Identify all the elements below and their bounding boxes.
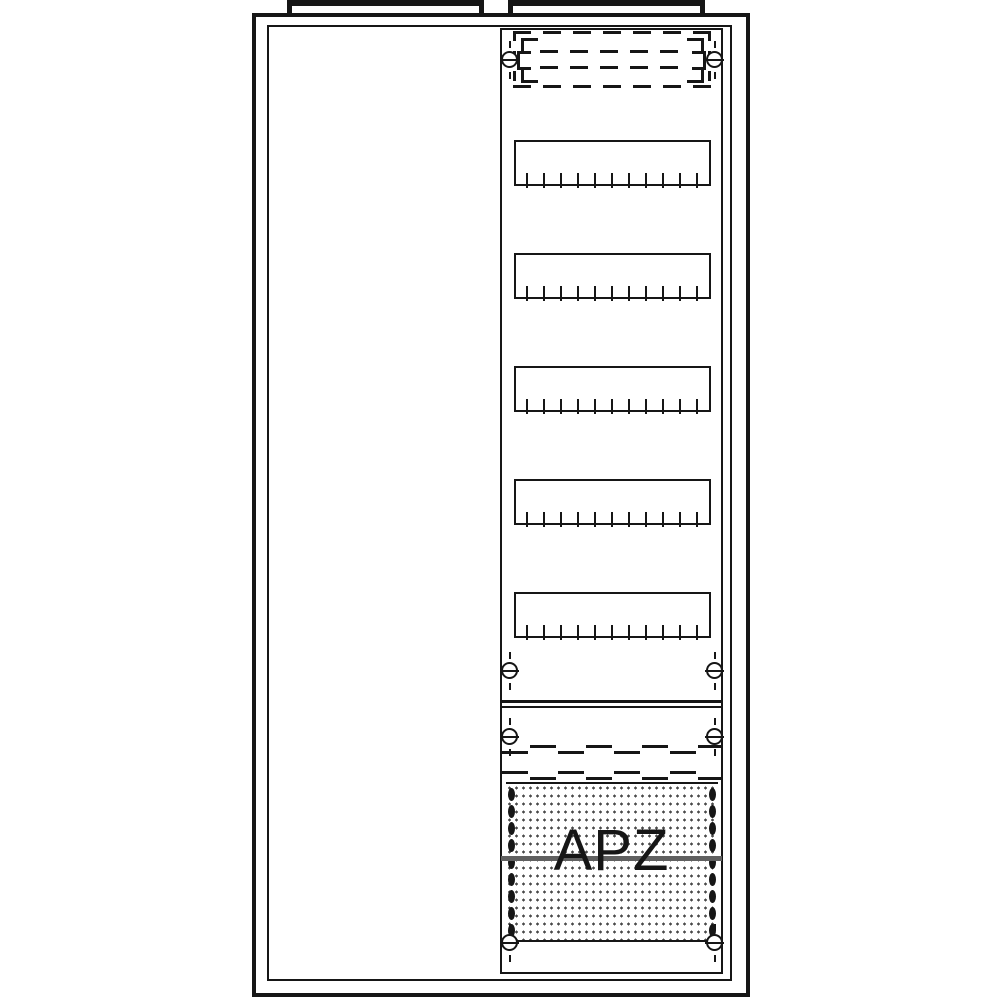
screw-icon [501,934,518,951]
joint-dash [502,771,528,774]
module-tick [560,625,562,640]
perforation-dot [709,890,716,903]
joint-dash [530,777,556,780]
perforation-dot [709,788,716,801]
module-tick [594,625,596,640]
din-rail-row [514,366,711,412]
module-tick [526,286,528,301]
field-divider-line [500,700,723,703]
module-tick [560,512,562,527]
module-tick [611,173,613,188]
screw-alignment-mark [509,683,511,690]
module-tick [696,173,698,188]
joint-dash [558,751,584,754]
screw-alignment-mark [509,41,511,48]
module-tick [662,512,664,527]
module-tick [662,286,664,301]
joint-dash [614,771,640,774]
screw-alignment-mark [509,72,511,79]
perforation-dot [709,805,716,818]
module-tick [696,286,698,301]
module-tick [645,286,647,301]
module-tick [594,512,596,527]
module-tick [526,625,528,640]
knockout-dash-top [513,31,712,34]
joint-dash [614,751,640,754]
screw-icon [501,51,518,68]
module-tick [543,625,545,640]
knockout-mid-bracket-left [517,51,531,70]
module-tick [577,512,579,527]
module-tick [645,512,647,527]
module-tick [594,286,596,301]
screw-alignment-mark [714,41,716,48]
joint-dash [530,745,556,748]
screw-alignment-mark [714,72,716,79]
joint-dash [642,777,668,780]
screw-alignment-mark [509,718,511,725]
module-tick [662,399,664,414]
module-tick [662,625,664,640]
joint-dash [558,771,584,774]
screw-alignment-mark [509,924,511,931]
module-tick [679,512,681,527]
module-tick [645,625,647,640]
module-tick [594,399,596,414]
module-tick [577,399,579,414]
knockout-dash-bottom [513,85,712,88]
joint-dash [670,771,696,774]
din-rail-row [514,253,711,299]
module-tick [526,512,528,527]
module-tick [543,399,545,414]
dashed-cover-joint [502,771,723,781]
screw-icon [706,51,723,68]
joint-dash [698,745,723,748]
module-tick [577,173,579,188]
screw-alignment-mark [509,749,511,756]
module-tick [679,399,681,414]
module-tick [628,399,630,414]
module-tick [577,286,579,301]
screw-icon [706,728,723,745]
joint-dash [698,777,723,780]
joint-dash [642,745,668,748]
module-tick [611,286,613,301]
screw-alignment-mark [714,749,716,756]
module-tick [594,173,596,188]
module-tick [560,173,562,188]
din-rail-row [514,140,711,186]
perforation-dot [508,788,515,801]
din-rail-row [514,479,711,525]
screw-alignment-mark [714,718,716,725]
screw-alignment-mark [714,652,716,659]
module-tick [645,173,647,188]
screw-alignment-mark [714,924,716,931]
module-tick [560,286,562,301]
module-tick [611,512,613,527]
knockout-dash-row [540,66,688,69]
module-tick [577,625,579,640]
module-tick [628,512,630,527]
perforation-dot [508,907,515,920]
screw-alignment-mark [714,955,716,962]
knockout-corner-bracket [521,38,538,52]
joint-dash [586,745,612,748]
module-tick [543,286,545,301]
enclosure-drawing: APZ [0,0,1000,1000]
module-tick [696,625,698,640]
module-tick [679,286,681,301]
joint-dash [586,777,612,780]
screw-alignment-mark [714,683,716,690]
module-tick [526,399,528,414]
knockout-corner-bracket [687,69,704,83]
module-tick [560,399,562,414]
module-tick [611,399,613,414]
perforation-dot [508,805,515,818]
module-tick [679,625,681,640]
screw-icon [501,662,518,679]
din-rail-row [514,592,711,638]
screw-icon [706,934,723,951]
module-tick [679,173,681,188]
field-divider-line [500,706,723,708]
module-tick [543,512,545,527]
apz-label: APZ [500,822,723,880]
module-tick [628,286,630,301]
perforation-dot [709,907,716,920]
dashed-cover-joint [502,745,723,755]
knockout-corner-bracket [521,69,538,83]
module-tick [526,173,528,188]
module-tick [628,625,630,640]
module-tick [645,399,647,414]
module-tick [662,173,664,188]
screw-alignment-mark [509,955,511,962]
module-tick [543,173,545,188]
screw-icon [501,728,518,745]
knockout-corner-bracket [687,38,704,52]
mounting-tab-right [508,0,705,14]
module-tick [611,625,613,640]
module-tick [696,399,698,414]
module-tick [696,512,698,527]
perforation-dot [508,890,515,903]
screw-alignment-mark [509,652,511,659]
joint-dash [502,751,528,754]
knockout-dash-row [540,50,688,53]
knockout-mid-bracket-right [692,51,706,70]
joint-dash [670,751,696,754]
module-tick [628,173,630,188]
mounting-tab-left [287,0,484,14]
screw-icon [706,662,723,679]
